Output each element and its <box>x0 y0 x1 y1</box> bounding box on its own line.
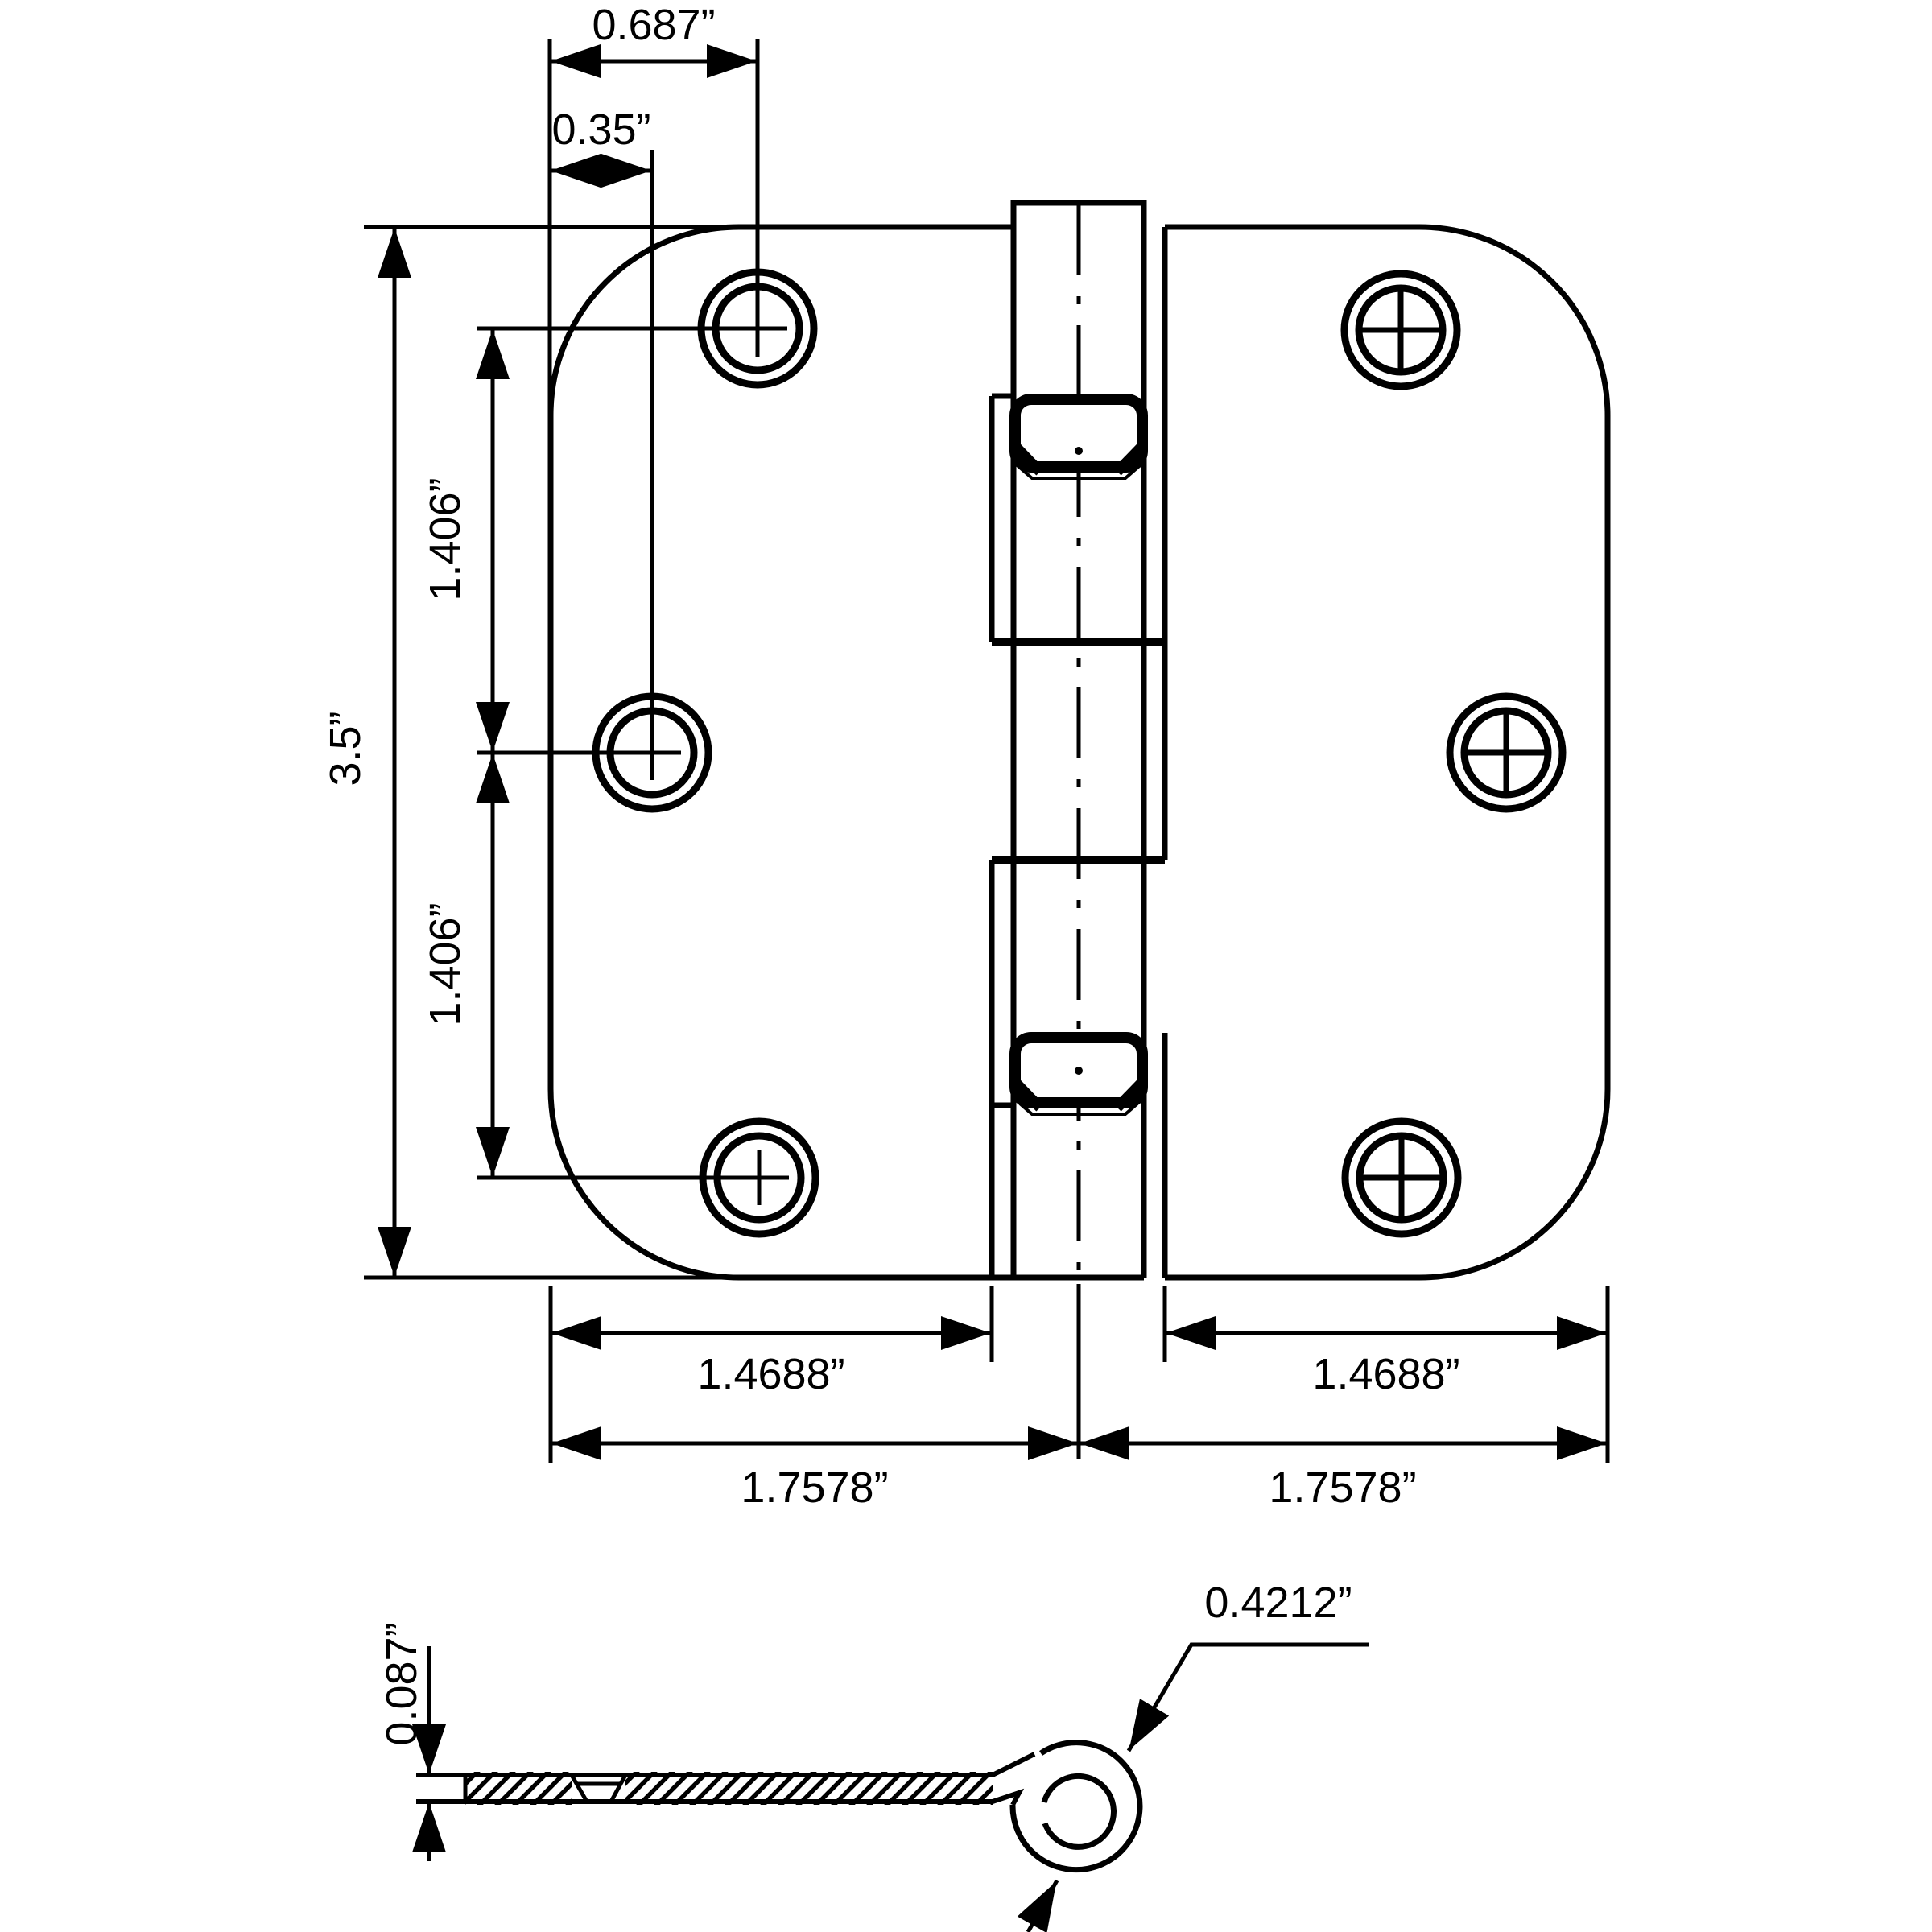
bearing-top <box>1015 399 1142 478</box>
dim-label-overall-height: 3.5” <box>321 711 369 786</box>
screw-hole-right-middle <box>1450 696 1563 809</box>
dim-label-half-width-right: 1.7578” <box>1269 1463 1416 1512</box>
dim-label-hole-spacing-upper: 1.406” <box>421 477 469 601</box>
knuckle-diameter-leader: 0.4212” <box>1129 1579 1368 1751</box>
dim-label-leaf-width-right: 1.4688” <box>1312 1350 1459 1398</box>
knuckle-curl <box>1013 1743 1140 1870</box>
left-leaf-knuckle-notch <box>992 396 1013 1278</box>
leader-line <box>1129 1645 1368 1751</box>
screw-hole-right-bottom <box>1345 1121 1458 1234</box>
side-view: 0.087” 0.4212” <box>378 1579 1368 1932</box>
hinge-drawing-svg: 0.687” 0.35” 3.5” 1.406” 1.406” 1.4688” … <box>0 0 1932 1932</box>
dim-label-leaf-thickness: 0.087” <box>378 1622 426 1745</box>
screw-hole-right-top <box>1344 274 1457 386</box>
bearing-bottom <box>1015 1038 1142 1114</box>
leaf-section <box>416 1754 1034 1805</box>
dim-label-hole-spacing-lower: 1.406” <box>421 902 469 1026</box>
thickness-dimension: 0.087” <box>378 1622 429 1861</box>
dim-label-corner-hole-offset: 0.687” <box>592 1 715 49</box>
curl-outer <box>1013 1743 1140 1870</box>
dim-label-knuckle-diameter: 0.4212” <box>1204 1579 1352 1627</box>
dim-label-middle-hole-offset: 0.35” <box>551 105 650 154</box>
extension-lines <box>364 39 1608 1463</box>
dim-label-leaf-width-left: 1.4688” <box>697 1350 844 1398</box>
dim-label-half-width-left: 1.7578” <box>741 1463 888 1512</box>
curl-inner <box>1044 1776 1114 1847</box>
technical-drawing: 0.687” 0.35” 3.5” 1.406” 1.406” 1.4688” … <box>0 0 1932 1932</box>
countersink-hole-section <box>572 1775 625 1802</box>
lower-leader-line <box>1028 1880 1057 1932</box>
front-view: 0.687” 0.35” 3.5” 1.406” 1.406” 1.4688” … <box>321 1 1608 1512</box>
